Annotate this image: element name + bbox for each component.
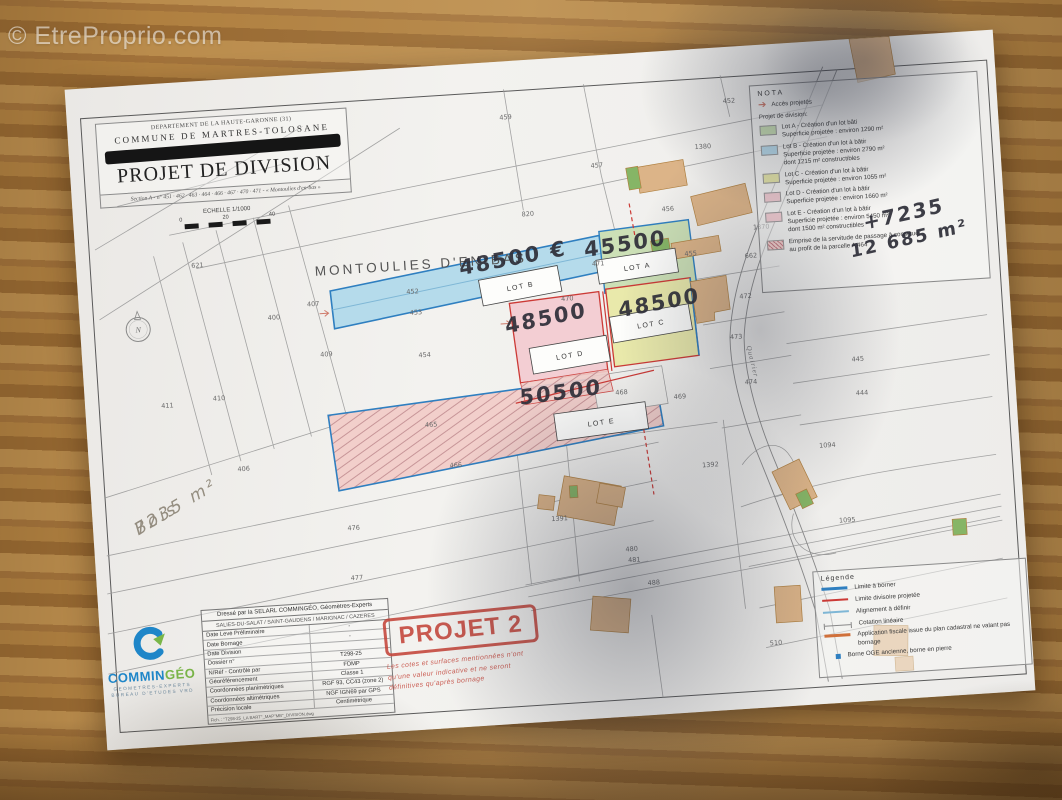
parcel-number: 1391: [551, 514, 568, 523]
parcel-number: 469: [673, 392, 686, 401]
lot-c-swatch: [762, 172, 780, 183]
parcel-number: 453: [409, 308, 422, 317]
legend-box: Légende Limite à borner Limite divisoire…: [812, 558, 1032, 679]
parcel-number: 820: [521, 210, 534, 219]
parcel-number: 455: [684, 249, 697, 258]
parcel-number: 410: [213, 394, 226, 403]
acces-label: Accès projetés: [771, 99, 812, 109]
parcel-number: 457: [590, 161, 603, 170]
surveyor-block: COMMINGÉO GEOMETRES-EXPERTS BUREAU D'ETU…: [101, 598, 396, 732]
servitude-swatch: [767, 239, 785, 250]
parcel-number: 477: [350, 573, 363, 582]
access-arrow-icon: ➔: [758, 102, 767, 109]
parcel-number: 452: [406, 287, 419, 296]
scale-tick-0: 0: [179, 217, 182, 223]
parcel-number: 454: [418, 351, 431, 360]
commingeo-logo: COMMINGÉO GEOMETRES-EXPERTS BUREAU D'ETU…: [101, 610, 202, 731]
nota-box: NOTA ➔ Accès projetés Projet de division…: [749, 71, 991, 293]
parcel-number: 662: [745, 251, 758, 260]
parcel-number: 459: [499, 113, 512, 122]
parcel-number: 406: [237, 465, 250, 474]
north-arrow-icon: [134, 311, 141, 319]
photo-scene: Quairier: [0, 0, 1062, 800]
parcel-number: 411: [161, 401, 174, 410]
parcel-number: 1094: [819, 441, 836, 450]
parcel-number: 409: [320, 350, 333, 359]
lot-b-swatch: [761, 145, 779, 156]
parcel-number: 1392: [702, 460, 719, 469]
blue-line-sample: [821, 586, 847, 590]
parcel-number: 481: [628, 556, 641, 565]
projet2-stamp: PROJET 2 Les cotes et surfaces mentionné…: [382, 603, 549, 694]
blue-square-sample: [836, 654, 841, 659]
parcel-number: 1095: [839, 516, 856, 525]
parcel-number: 473: [730, 332, 743, 341]
north-label: N: [134, 325, 142, 334]
parcel-number: 621: [191, 261, 204, 270]
lot-e-swatch: [765, 212, 783, 223]
parcel-number: 445: [851, 355, 864, 364]
watermark: © EtreProprio.com: [8, 22, 222, 51]
lot-d-swatch: [764, 192, 782, 203]
parcel-number: 472: [739, 292, 752, 301]
lot-a-swatch: [759, 125, 777, 136]
parcel-number: 407: [307, 300, 320, 309]
road-label: Quairier: [745, 345, 760, 378]
scale-tick-20: 20: [222, 214, 228, 220]
north-compass: N: [125, 311, 151, 342]
orange-line-sample: [824, 634, 850, 638]
parcel-number: 444: [856, 388, 869, 397]
parcel-number: 488: [647, 578, 660, 587]
parcel-number: 510: [770, 639, 783, 648]
scale-tick-40: 40: [269, 211, 275, 217]
title-block: DEPARTEMENT DE LA HAUTE-GARONNE (31) COM…: [95, 108, 354, 236]
parcel-number: 465: [425, 420, 438, 429]
plan-paper: Quairier: [65, 30, 1036, 751]
parcel-number: 480: [625, 545, 638, 554]
parcel-number: 474: [745, 378, 758, 387]
parcel-number: 400: [268, 313, 281, 322]
lightblue-line-sample: [823, 610, 849, 614]
ticks-sample: [824, 622, 852, 630]
parcel-number: 476: [347, 524, 360, 533]
parcel-number: 466: [449, 461, 462, 470]
surveyor-table: Dressé par la SELARL COMMINGÉO, Géomètre…: [200, 598, 395, 725]
parcel-number: 456: [661, 205, 674, 214]
parcel-number: 1380: [694, 142, 711, 151]
red-line-sample: [822, 598, 848, 602]
commingeo-logo-icon: [130, 624, 168, 662]
parcel-number: 452: [722, 96, 735, 105]
parcel-number: 468: [615, 388, 628, 397]
